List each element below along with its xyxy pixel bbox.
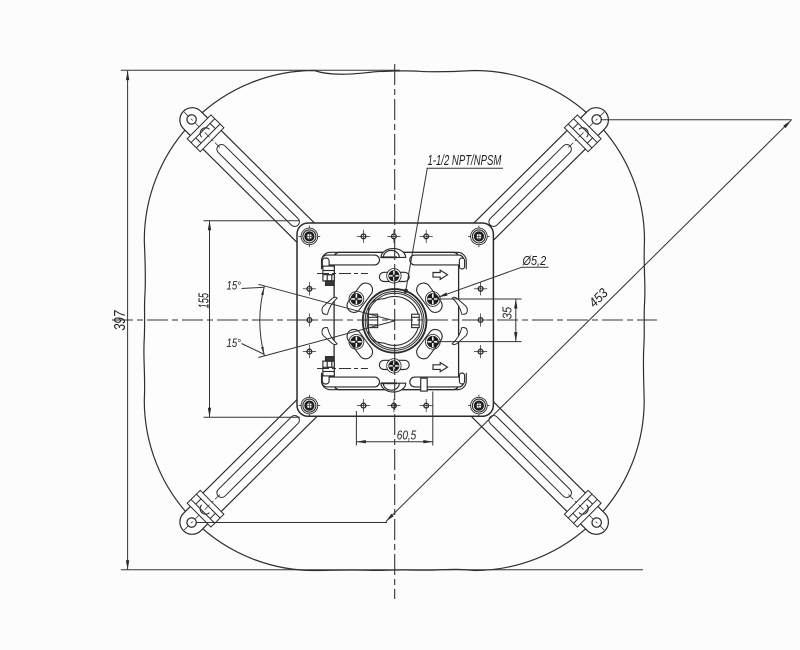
- svg-text:35: 35: [500, 307, 515, 320]
- svg-text:60,5: 60,5: [397, 428, 417, 443]
- svg-text:397: 397: [110, 310, 128, 331]
- svg-text:15°: 15°: [227, 337, 242, 350]
- svg-text:155: 155: [195, 293, 212, 309]
- svg-text:15°: 15°: [227, 280, 242, 293]
- svg-text:Ø5,2: Ø5,2: [522, 253, 547, 268]
- svg-text:1-1/2 NPT/NPSM: 1-1/2 NPT/NPSM: [428, 152, 502, 169]
